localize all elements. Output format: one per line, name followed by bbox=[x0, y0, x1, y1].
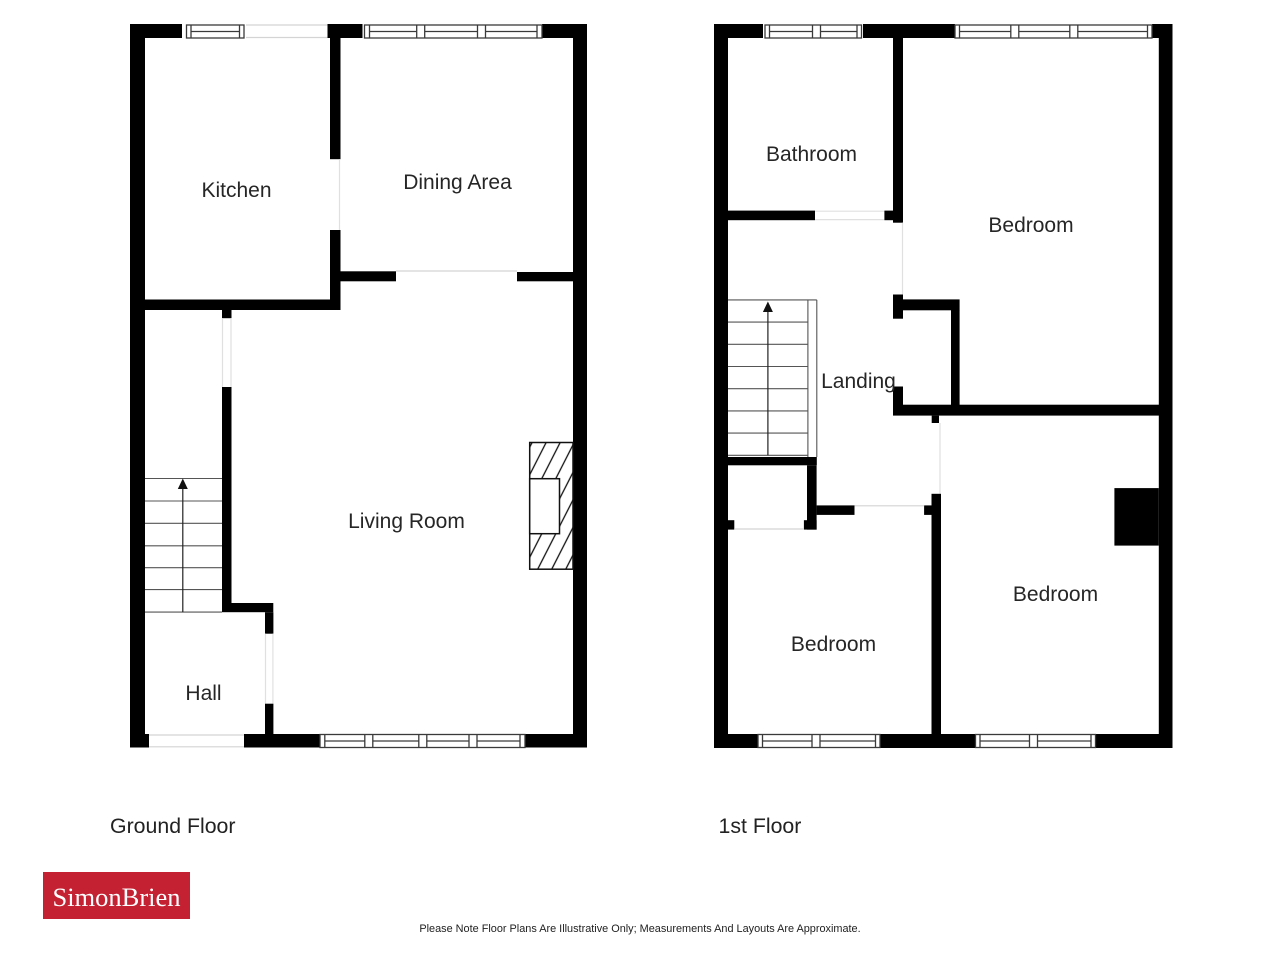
svg-text:Dining Area: Dining Area bbox=[403, 171, 512, 194]
svg-text:Living Room: Living Room bbox=[348, 510, 465, 533]
svg-text:Bedroom: Bedroom bbox=[1013, 583, 1098, 606]
svg-text:Please Note Floor Plans Are Il: Please Note Floor Plans Are Illustrative… bbox=[419, 923, 860, 935]
svg-text:Landing: Landing bbox=[821, 370, 896, 393]
svg-text:Bedroom: Bedroom bbox=[791, 633, 876, 656]
svg-text:Hall: Hall bbox=[185, 682, 221, 705]
svg-text:Kitchen: Kitchen bbox=[201, 179, 271, 202]
svg-text:Ground Floor: Ground Floor bbox=[110, 814, 235, 838]
svg-text:1st Floor: 1st Floor bbox=[719, 814, 802, 838]
svg-text:Bathroom: Bathroom bbox=[766, 143, 857, 166]
svg-text:SimonBrien: SimonBrien bbox=[52, 882, 180, 912]
svg-text:Bedroom: Bedroom bbox=[988, 214, 1073, 237]
